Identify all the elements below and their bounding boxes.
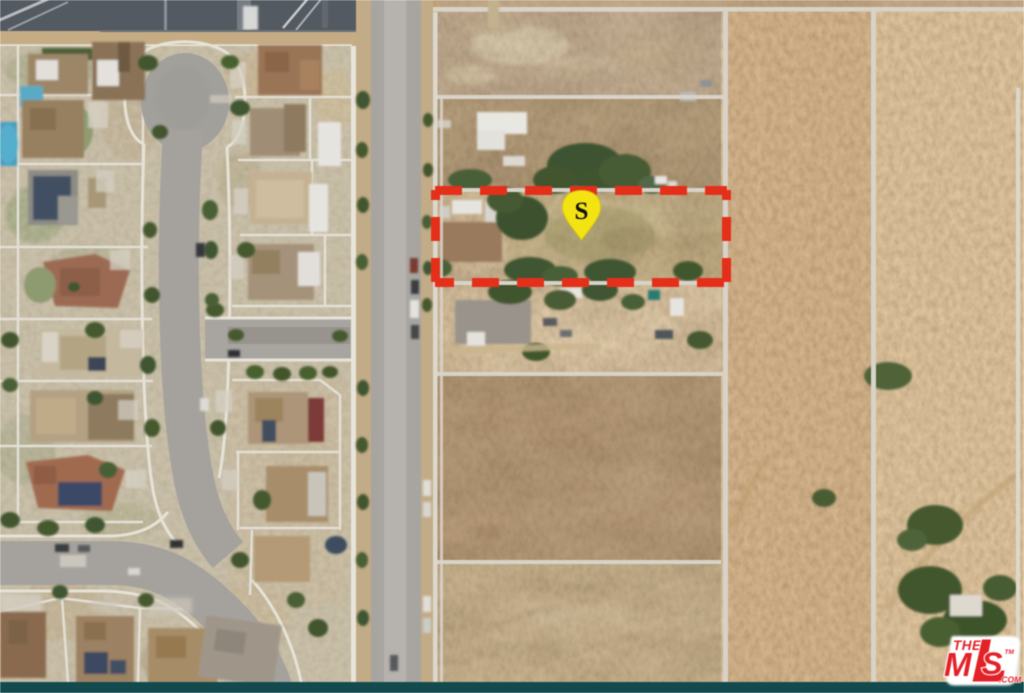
svg-text:TM: TM xyxy=(1005,649,1015,656)
svg-text:S: S xyxy=(575,198,589,225)
svg-text:.COM: .COM xyxy=(999,675,1022,685)
svg-text:M: M xyxy=(944,646,973,683)
